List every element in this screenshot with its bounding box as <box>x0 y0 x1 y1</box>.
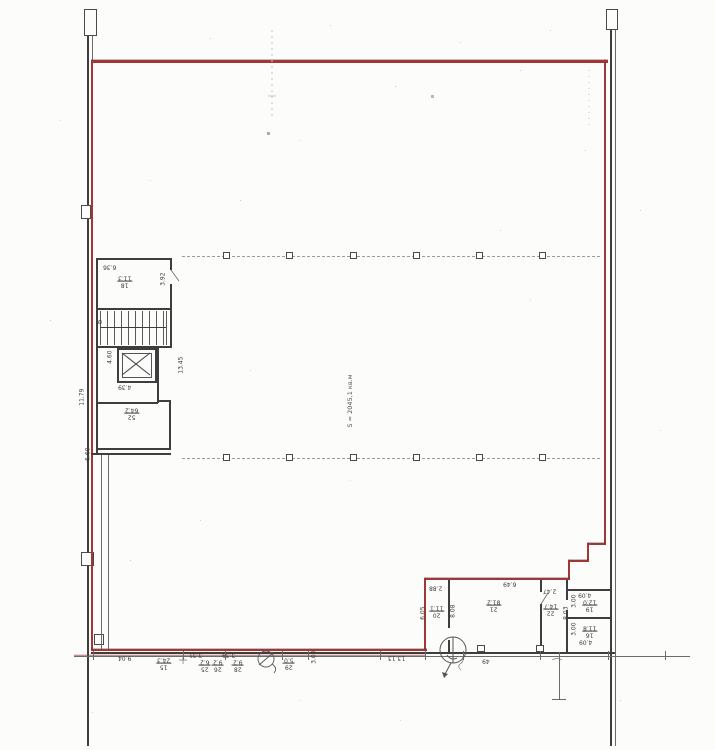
room-area: 24.3 <box>156 656 171 663</box>
dim-6-49: 6.49 <box>503 580 516 586</box>
dim-4-39: 4.39 <box>118 383 131 389</box>
room-label-29: 29 5.0 <box>283 656 295 670</box>
dim-3-00-a: 3.00 <box>572 594 578 607</box>
dim-6-05: 6.05 <box>421 606 427 619</box>
room-area: 11.3 <box>117 274 132 281</box>
door-leaf-room18 <box>171 270 179 281</box>
room-number: 16 <box>586 631 594 637</box>
dim-6-60: 6.60 <box>86 447 92 460</box>
dim-8-08: 8.08 <box>451 604 457 617</box>
pencil-squiggle-1 <box>459 656 463 670</box>
dim-11-79: 11.79 <box>79 389 85 406</box>
room-number: 22 <box>547 609 555 615</box>
dim-3-00-c: 3.00 <box>312 650 318 663</box>
mark-49: 49 <box>482 657 490 663</box>
dim-13-45: 13.45 <box>178 357 184 374</box>
hall-area-label: S = 2045,1 кв.м <box>346 347 354 455</box>
room-number: 20 <box>433 611 441 617</box>
dim-4-09-b: 4.09 <box>579 638 592 644</box>
room-area: 6.2 <box>199 658 211 665</box>
room-area: 11.8 <box>582 624 597 631</box>
room-number: 15 <box>160 663 168 669</box>
room-label-18: 18 11.3 <box>117 274 132 288</box>
room-label-16: 16 11.8 <box>582 624 597 638</box>
room-area: 5.0 <box>283 656 295 663</box>
plus-tick <box>179 656 187 664</box>
room-area: 9.2 <box>212 658 224 665</box>
room-label-20: 20 11.1 <box>429 604 444 618</box>
scanned-floor-plan-page: S = 2045,1 кв.м 6.36 18 11.3 3.92 Б 4.60… <box>0 0 715 750</box>
dim-9-04: 9.04 <box>118 654 131 660</box>
room-label-26: 26 9.2 <box>212 658 224 672</box>
dim-4-60: 4.60 <box>108 350 114 363</box>
pencil-squiggle-2 <box>552 659 562 661</box>
dim-8-03: 8.03 <box>564 606 570 619</box>
room-area: 14.7 <box>543 602 558 609</box>
elevator-x-icon <box>122 353 150 375</box>
room-number: 28 <box>234 665 242 671</box>
entrance-arrow-head <box>442 672 448 678</box>
room-area: 9.2 <box>232 658 244 665</box>
dim-6-36: 6.36 <box>103 263 116 269</box>
stair-label: Б <box>97 319 104 324</box>
room-label-28: 28 9.2 <box>232 658 244 672</box>
room-label-25: 25 6.2 <box>199 658 211 672</box>
room-label-52: 52 64.2 <box>124 406 139 420</box>
room-number: 25 <box>201 665 209 671</box>
dim-3-39: 3.39 <box>222 651 235 657</box>
room-area: 12.0 <box>582 598 597 605</box>
room-label-15: 15 24.3 <box>156 656 171 670</box>
room-label-22: 22 14.7 <box>543 602 558 616</box>
room-label-21: 21 81.2 <box>486 598 501 612</box>
room-label-19: 19 12.0 <box>582 598 597 612</box>
dim-13-13: 13.13 <box>388 654 405 660</box>
room-number: 21 <box>490 605 498 611</box>
dim-3-92: 3.92 <box>161 272 167 285</box>
room-number: 19 <box>586 605 594 611</box>
room-area: 81.2 <box>486 598 501 605</box>
dim-3-00-b: 3.00 <box>572 622 578 635</box>
dim-2-88: 2.88 <box>429 584 442 590</box>
room-area: 64.2 <box>124 406 139 413</box>
dim-4-09-a: 4.09 <box>578 591 591 597</box>
room-number: 29 <box>285 663 293 669</box>
axis-circle-symbol <box>258 651 276 673</box>
dim-2-47: 2.47 <box>543 587 556 593</box>
room-number: 18 <box>121 281 129 287</box>
dim-3-31: 3.31 <box>189 651 202 657</box>
room-number: 52 <box>128 413 136 419</box>
room-area: 11.1 <box>429 604 444 611</box>
room-number: 26 <box>214 665 222 671</box>
linework-overlay <box>0 0 715 750</box>
